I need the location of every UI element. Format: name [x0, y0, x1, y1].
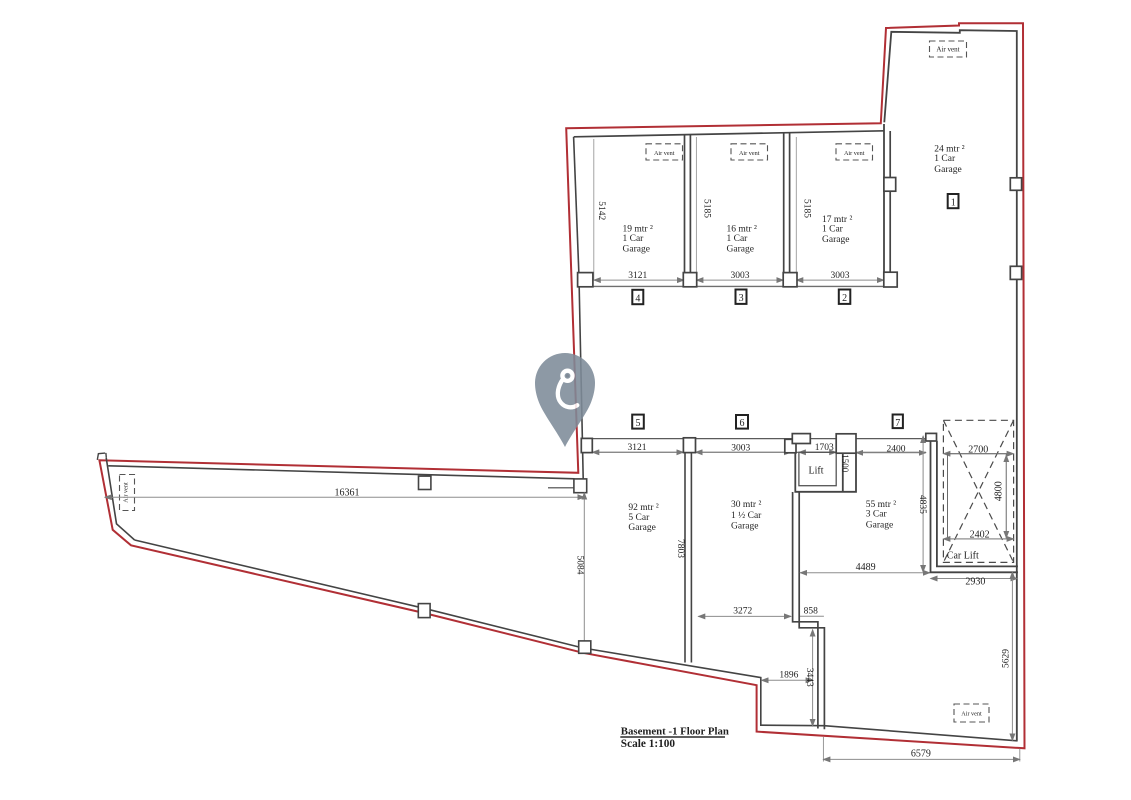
svg-text:Garage: Garage [628, 523, 655, 533]
svg-text:6579: 6579 [911, 749, 931, 760]
svg-text:Air vent: Air vent [961, 711, 982, 718]
svg-text:16 mtr ²: 16 mtr ² [727, 224, 757, 234]
svg-text:1703: 1703 [815, 443, 834, 453]
svg-text:4800: 4800 [993, 481, 1004, 501]
svg-text:3272: 3272 [733, 607, 752, 617]
svg-text:Air vent: Air vent [739, 150, 760, 157]
svg-text:92 mtr ²: 92 mtr ² [628, 503, 658, 513]
svg-text:3: 3 [739, 293, 744, 304]
svg-text:Car Lift: Car Lift [947, 551, 979, 562]
svg-text:1 Car: 1 Car [934, 154, 956, 164]
svg-text:5: 5 [636, 418, 641, 429]
svg-text:3 Car: 3 Car [866, 510, 888, 520]
svg-text:2: 2 [842, 293, 847, 304]
svg-text:6: 6 [740, 418, 745, 429]
svg-text:2930: 2930 [965, 577, 985, 588]
svg-text:7: 7 [895, 418, 900, 429]
svg-text:1 Car: 1 Car [727, 234, 749, 244]
svg-text:5185: 5185 [802, 199, 812, 218]
svg-text:Basement -1 Floor Plan: Basement -1 Floor Plan [621, 726, 729, 738]
svg-text:24 mtr ²: 24 mtr ² [934, 145, 964, 155]
svg-text:4835: 4835 [917, 495, 927, 514]
svg-text:Garage: Garage [731, 521, 758, 531]
svg-text:Garage: Garage [623, 245, 650, 255]
svg-text:858: 858 [804, 606, 819, 616]
svg-text:3003: 3003 [731, 444, 750, 454]
svg-text:5629: 5629 [1002, 649, 1012, 668]
svg-text:5185: 5185 [702, 199, 712, 218]
svg-text:Scale 1:100: Scale 1:100 [621, 738, 676, 750]
svg-text:3443: 3443 [804, 668, 814, 687]
svg-text:Garage: Garage [727, 245, 754, 255]
svg-text:5142: 5142 [596, 201, 606, 220]
svg-text:4489: 4489 [856, 562, 876, 573]
svg-text:3121: 3121 [628, 443, 647, 453]
svg-text:1: 1 [951, 198, 956, 209]
svg-text:Lift: Lift [809, 466, 824, 477]
svg-text:Garage: Garage [934, 165, 961, 175]
svg-text:30 mtr ²: 30 mtr ² [731, 500, 761, 510]
svg-text:16361: 16361 [335, 488, 360, 499]
svg-text:4: 4 [635, 294, 640, 305]
svg-text:3121: 3121 [628, 271, 647, 281]
svg-text:1 Car: 1 Car [822, 224, 844, 234]
svg-text:2402: 2402 [970, 530, 990, 541]
svg-text:3003: 3003 [831, 271, 850, 281]
svg-text:Air vent: Air vent [654, 150, 675, 157]
svg-text:Air vent: Air vent [123, 482, 130, 503]
svg-text:Garage: Garage [866, 521, 893, 531]
svg-text:Air vent: Air vent [936, 46, 959, 54]
svg-text:Air vent: Air vent [844, 150, 865, 157]
svg-text:55 mtr ²: 55 mtr ² [866, 500, 896, 510]
svg-text:5 Car: 5 Car [628, 513, 650, 523]
svg-text:2400: 2400 [887, 445, 906, 455]
svg-text:7803: 7803 [675, 539, 685, 558]
svg-text:Garage: Garage [822, 235, 849, 245]
svg-text:19 mtr ²: 19 mtr ² [623, 224, 653, 234]
svg-text:3003: 3003 [731, 271, 750, 281]
svg-text:1 Car: 1 Car [623, 234, 645, 244]
svg-text:1 ½ Car: 1 ½ Car [731, 510, 762, 521]
svg-text:1500: 1500 [840, 454, 850, 473]
svg-text:1896: 1896 [779, 671, 798, 681]
svg-text:5084: 5084 [575, 556, 585, 575]
